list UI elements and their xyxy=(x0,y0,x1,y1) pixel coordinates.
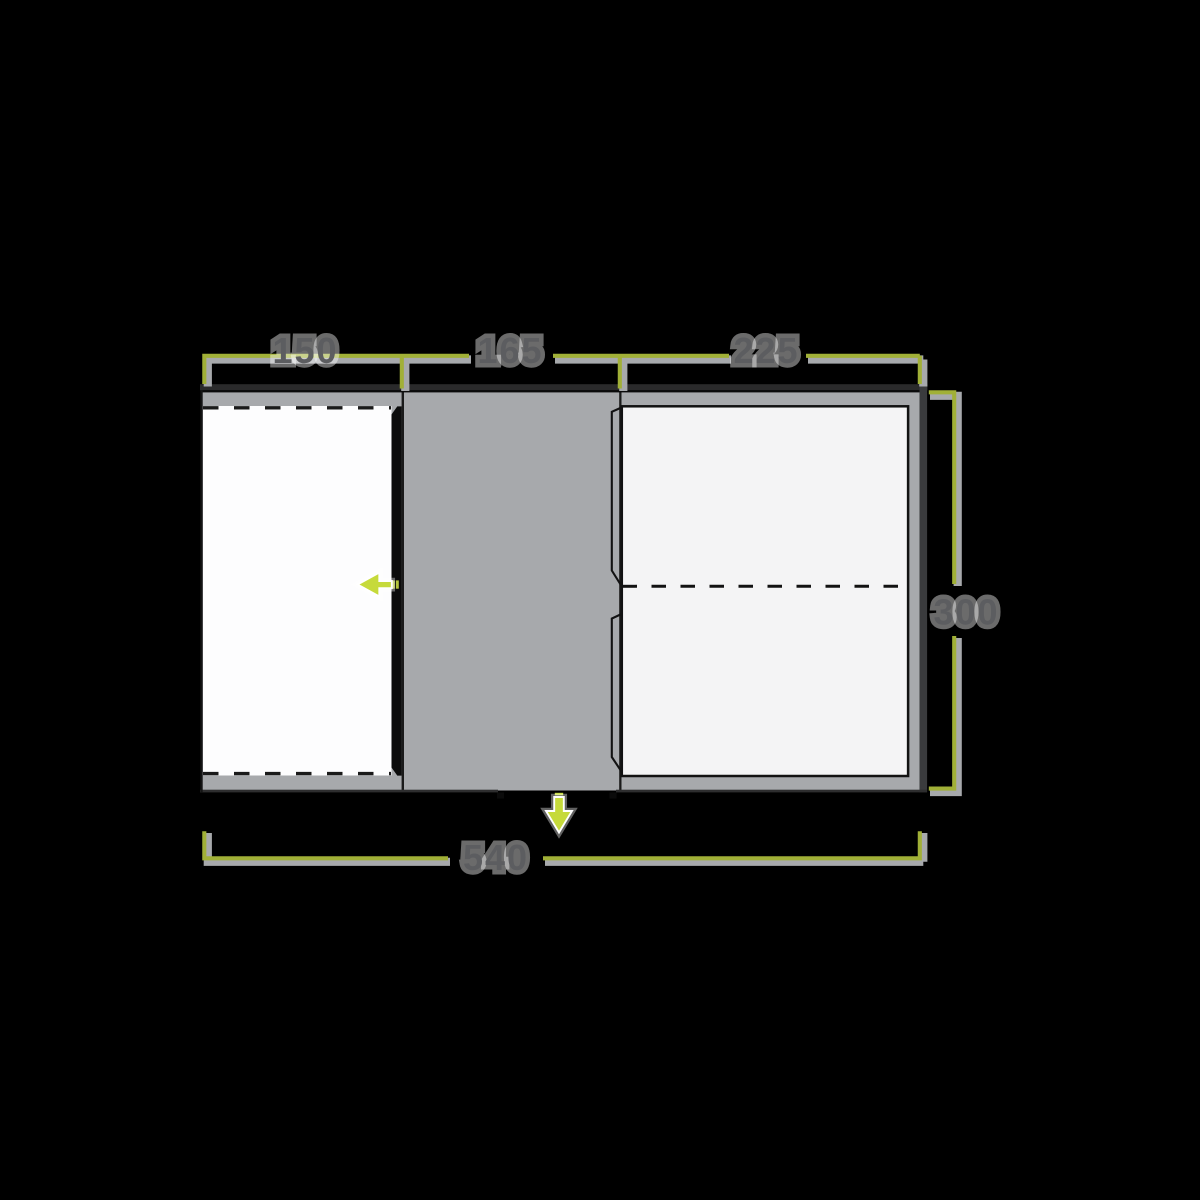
svg-text:165: 165 xyxy=(477,330,543,371)
svg-text:150: 150 xyxy=(272,330,338,371)
svg-text:540: 540 xyxy=(463,837,529,878)
svg-text:225: 225 xyxy=(733,330,799,371)
svg-text:300: 300 xyxy=(933,592,999,633)
